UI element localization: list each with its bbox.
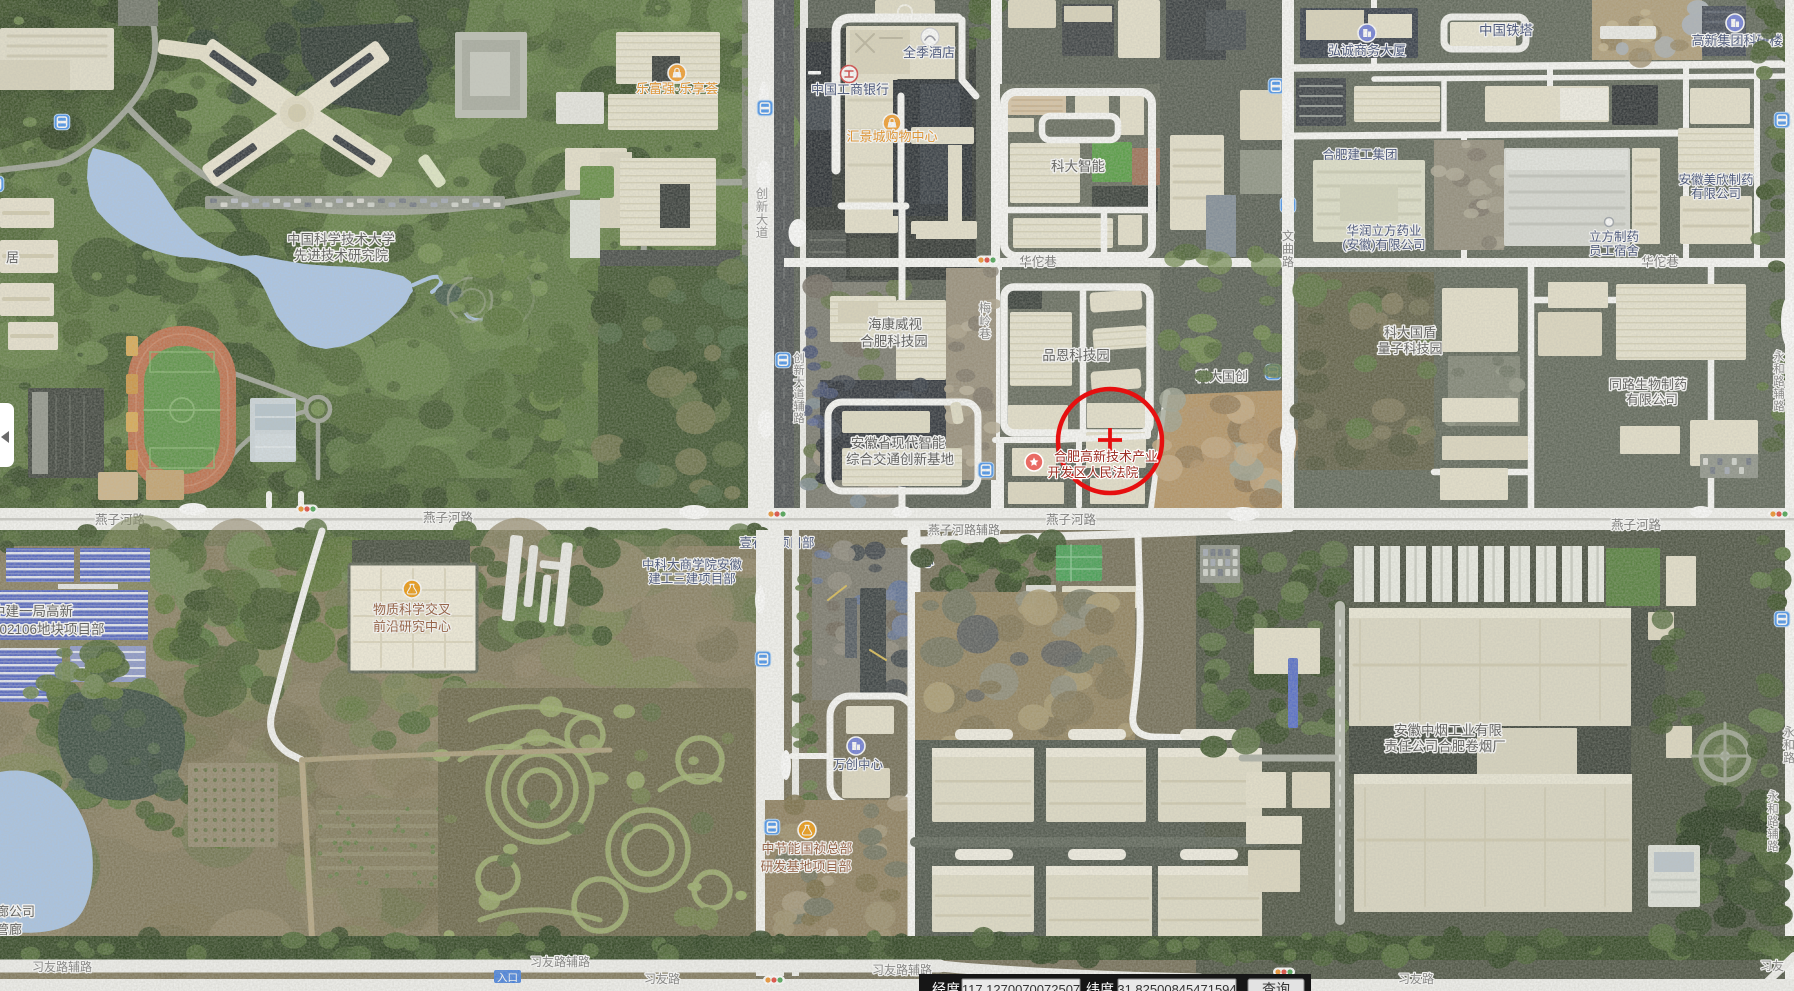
svg-text:31.82500845471594: 31.82500845471594 (1117, 982, 1236, 991)
svg-text:纬度: 纬度 (1086, 981, 1114, 991)
svg-text:117.1270070072507: 117.1270070072507 (962, 982, 1080, 991)
svg-text:经度: 经度 (932, 981, 960, 991)
svg-text:查询: 查询 (1262, 981, 1290, 991)
svg-text:开发区人民法院: 开发区人民法院 (1047, 465, 1138, 480)
svg-text:合肥高新技术产业: 合肥高新技术产业 (1054, 449, 1158, 464)
